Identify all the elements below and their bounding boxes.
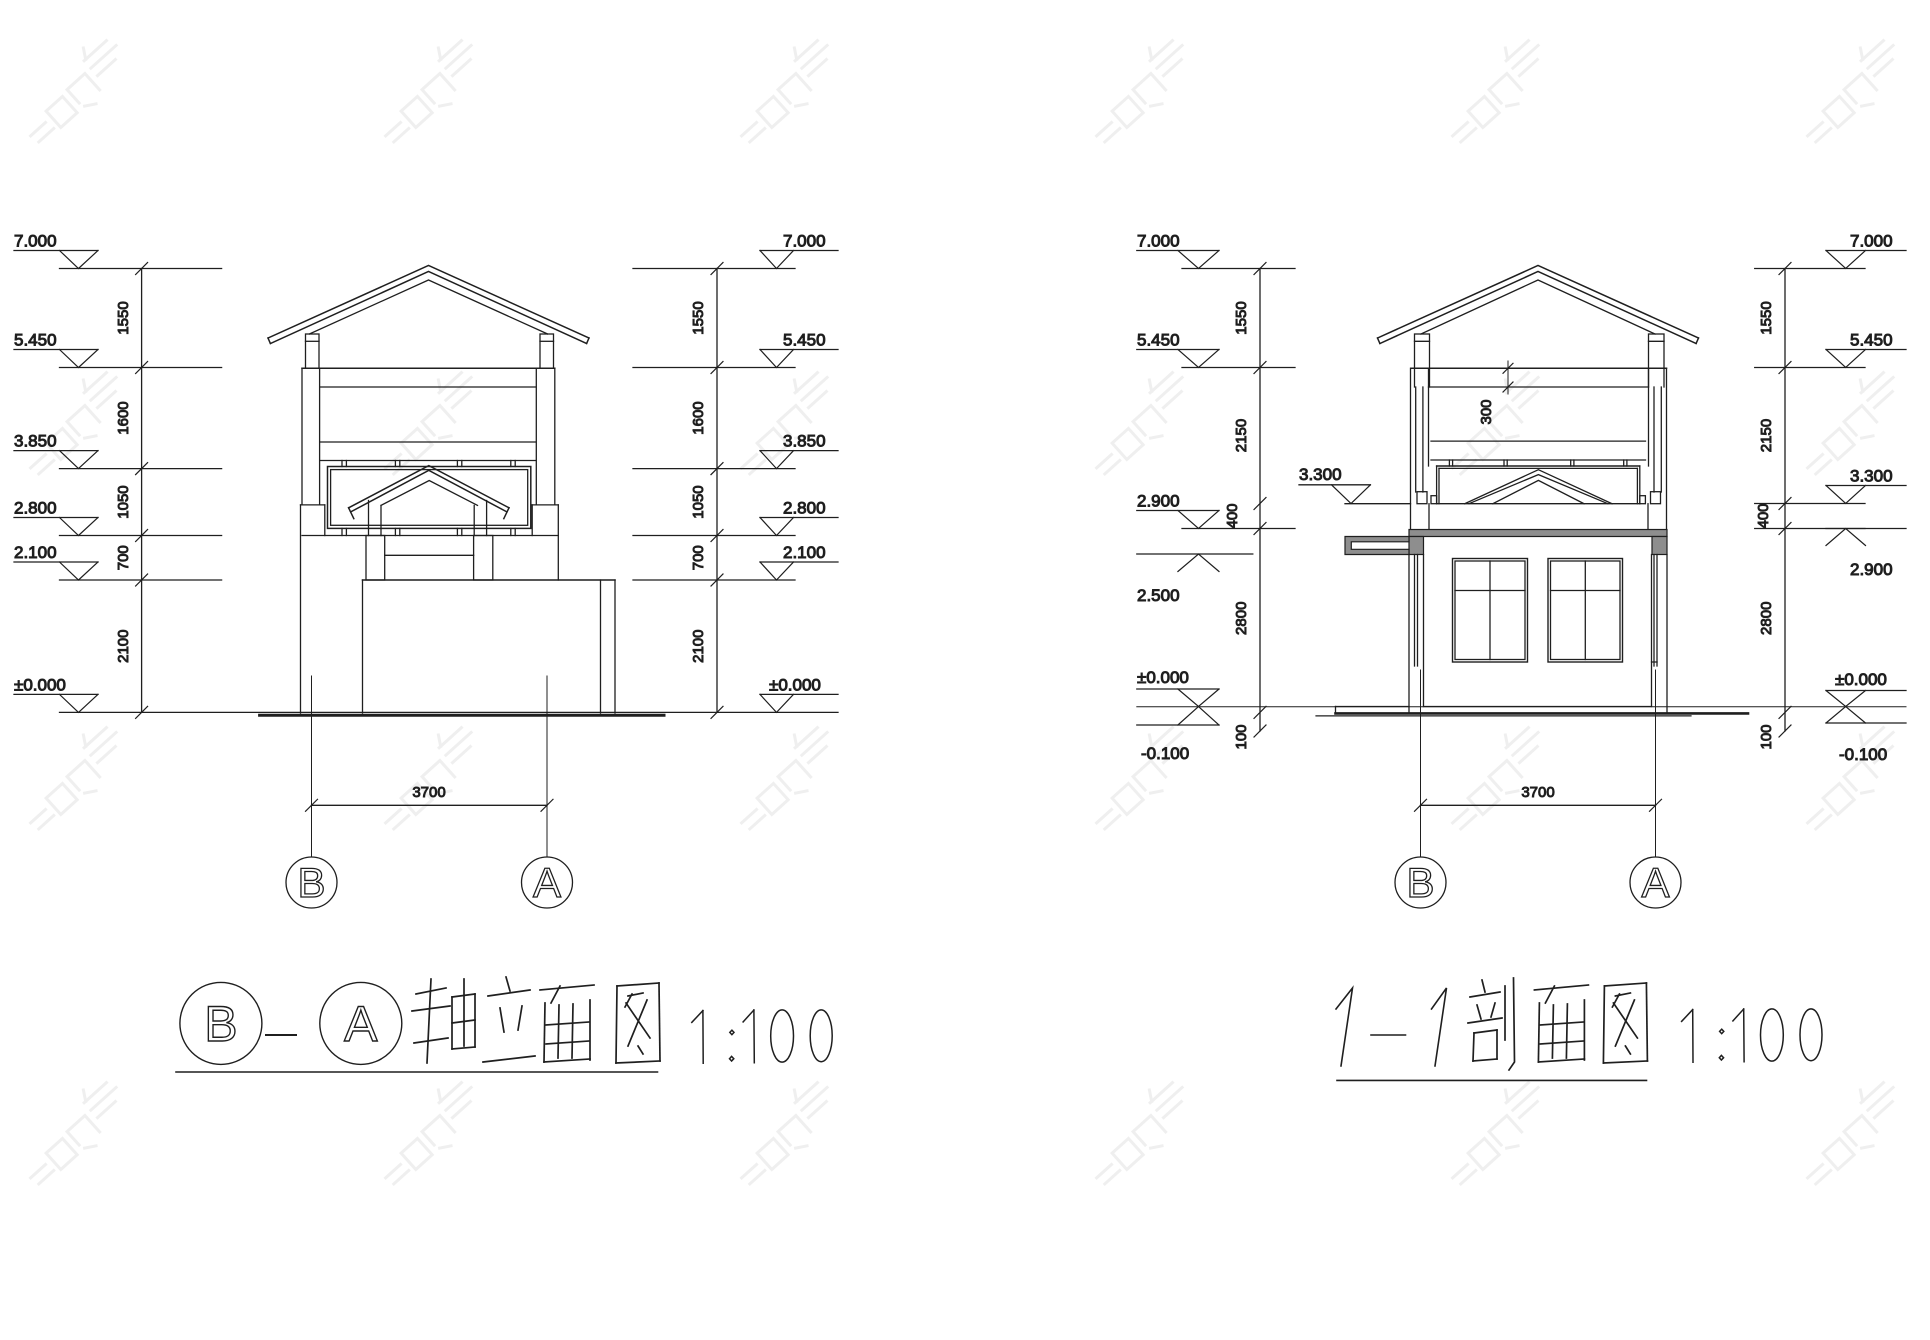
- svg-text:2800: 2800: [1233, 602, 1250, 635]
- svg-text:2.500: 2.500: [1137, 586, 1180, 605]
- svg-text:2.900: 2.900: [1850, 560, 1893, 579]
- svg-text:-0.100: -0.100: [1839, 745, 1887, 764]
- svg-text:7.000: 7.000: [783, 232, 826, 251]
- svg-text:300: 300: [1478, 399, 1495, 424]
- svg-text:5.450: 5.450: [783, 331, 826, 350]
- svg-text:2.800: 2.800: [783, 499, 826, 518]
- svg-text:100: 100: [1233, 724, 1250, 749]
- svg-text:±0.000: ±0.000: [1835, 670, 1887, 689]
- svg-text:1050: 1050: [115, 485, 132, 518]
- svg-text:2100: 2100: [690, 630, 707, 663]
- svg-text:100: 100: [1758, 724, 1775, 749]
- svg-text:1550: 1550: [115, 301, 132, 334]
- svg-text:3.300: 3.300: [1850, 467, 1893, 486]
- svg-text:2.900: 2.900: [1137, 492, 1180, 511]
- svg-text:2150: 2150: [1233, 419, 1250, 452]
- svg-text:A: A: [1641, 859, 1669, 906]
- svg-text:7.000: 7.000: [1137, 232, 1180, 251]
- svg-text:±0.000: ±0.000: [1137, 668, 1189, 687]
- svg-text:3700: 3700: [1521, 784, 1554, 801]
- svg-text:700: 700: [115, 545, 132, 570]
- svg-text:2.800: 2.800: [14, 499, 57, 518]
- svg-text:700: 700: [690, 545, 707, 570]
- svg-text:2150: 2150: [1758, 419, 1775, 452]
- svg-text:400: 400: [1224, 503, 1241, 528]
- svg-text:5.450: 5.450: [1137, 331, 1180, 350]
- svg-text:2.100: 2.100: [14, 543, 57, 562]
- svg-text:1600: 1600: [115, 401, 132, 434]
- svg-text:7.000: 7.000: [1850, 232, 1893, 251]
- svg-text:2.100: 2.100: [783, 543, 826, 562]
- svg-text:1550: 1550: [1758, 301, 1775, 334]
- svg-text:1600: 1600: [690, 401, 707, 434]
- svg-text:1550: 1550: [690, 301, 707, 334]
- svg-text:2100: 2100: [115, 630, 132, 663]
- svg-text:-0.100: -0.100: [1141, 744, 1189, 763]
- svg-text:400: 400: [1755, 503, 1772, 528]
- svg-text:3700: 3700: [412, 784, 445, 801]
- svg-text:3.850: 3.850: [783, 432, 826, 451]
- svg-text:7.000: 7.000: [14, 232, 57, 251]
- svg-text:A: A: [533, 859, 561, 906]
- svg-text:3.300: 3.300: [1299, 465, 1342, 484]
- svg-text:A: A: [344, 996, 378, 1052]
- svg-text:3.850: 3.850: [14, 432, 57, 451]
- svg-text:B: B: [204, 996, 237, 1052]
- svg-text:1550: 1550: [1233, 301, 1250, 334]
- svg-text:±0.000: ±0.000: [769, 675, 821, 694]
- svg-text:±0.000: ±0.000: [14, 675, 66, 694]
- svg-text:B: B: [297, 859, 325, 906]
- svg-text:5.450: 5.450: [14, 331, 57, 350]
- svg-text:2800: 2800: [1758, 602, 1775, 635]
- svg-text:B: B: [1406, 859, 1434, 906]
- svg-text:5.450: 5.450: [1850, 331, 1893, 350]
- svg-text:1050: 1050: [690, 485, 707, 518]
